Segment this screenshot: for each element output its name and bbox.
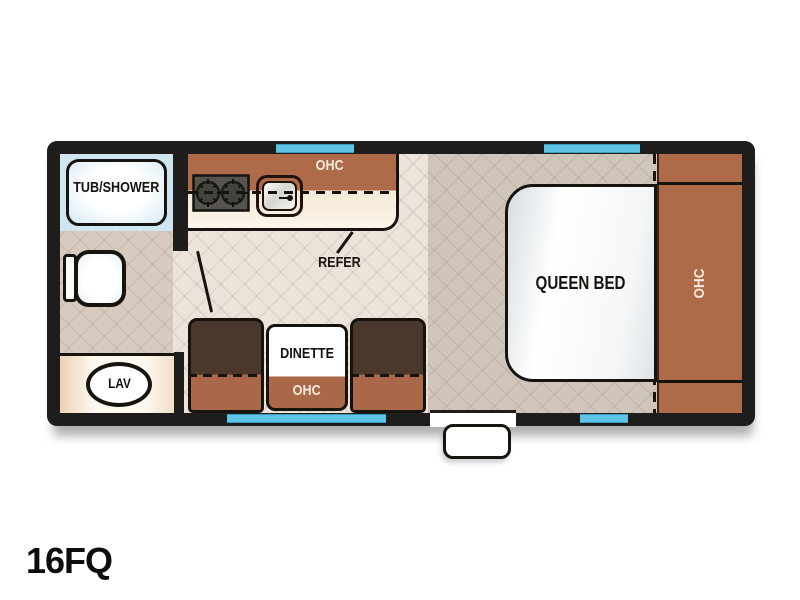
window-strip: [227, 414, 386, 423]
counter-dashed-line: [188, 191, 394, 194]
entry-door-threshold: [430, 410, 516, 413]
refer-label: REFER: [309, 253, 369, 271]
bathroom-lower-wall: [174, 352, 184, 413]
cabinet-divider-line: [657, 380, 742, 383]
toilet-icon: [74, 250, 126, 307]
model-title: 16FQ: [26, 540, 112, 582]
bathroom-kitchen-wall: [173, 154, 188, 251]
window-strip: [544, 144, 640, 153]
cabinet-divider-line: [657, 182, 742, 185]
sink-drain-icon: [287, 195, 293, 201]
bench-dashed-line: [350, 374, 426, 377]
lav-label: LAV: [86, 362, 152, 404]
tub-shower-label: TUB/SHOWER: [66, 176, 167, 198]
entry-step-icon: [443, 424, 511, 459]
dinette-bench-right: [350, 318, 426, 413]
dinette-label: DINETTE: [266, 343, 348, 363]
floorplan-canvas: OHC QUEEN BED TUB/SHOWER LAV OHC: [0, 0, 800, 600]
bench-dashed-line: [188, 374, 264, 377]
lav-counter: LAV: [60, 353, 174, 413]
window-strip: [580, 414, 628, 423]
trailer-outline: OHC QUEEN BED TUB/SHOWER LAV OHC: [47, 141, 755, 426]
queen-bed-label: QUEEN BED: [515, 272, 647, 294]
window-strip: [276, 144, 354, 153]
kitchen-ohc-label: OHC: [300, 155, 360, 175]
dinette-ohc-label: OHC: [266, 380, 348, 400]
bedroom-ohc-label: OHC: [677, 253, 723, 313]
kitchen-sink-icon: [256, 175, 303, 217]
dinette-bench-left: [188, 318, 264, 413]
